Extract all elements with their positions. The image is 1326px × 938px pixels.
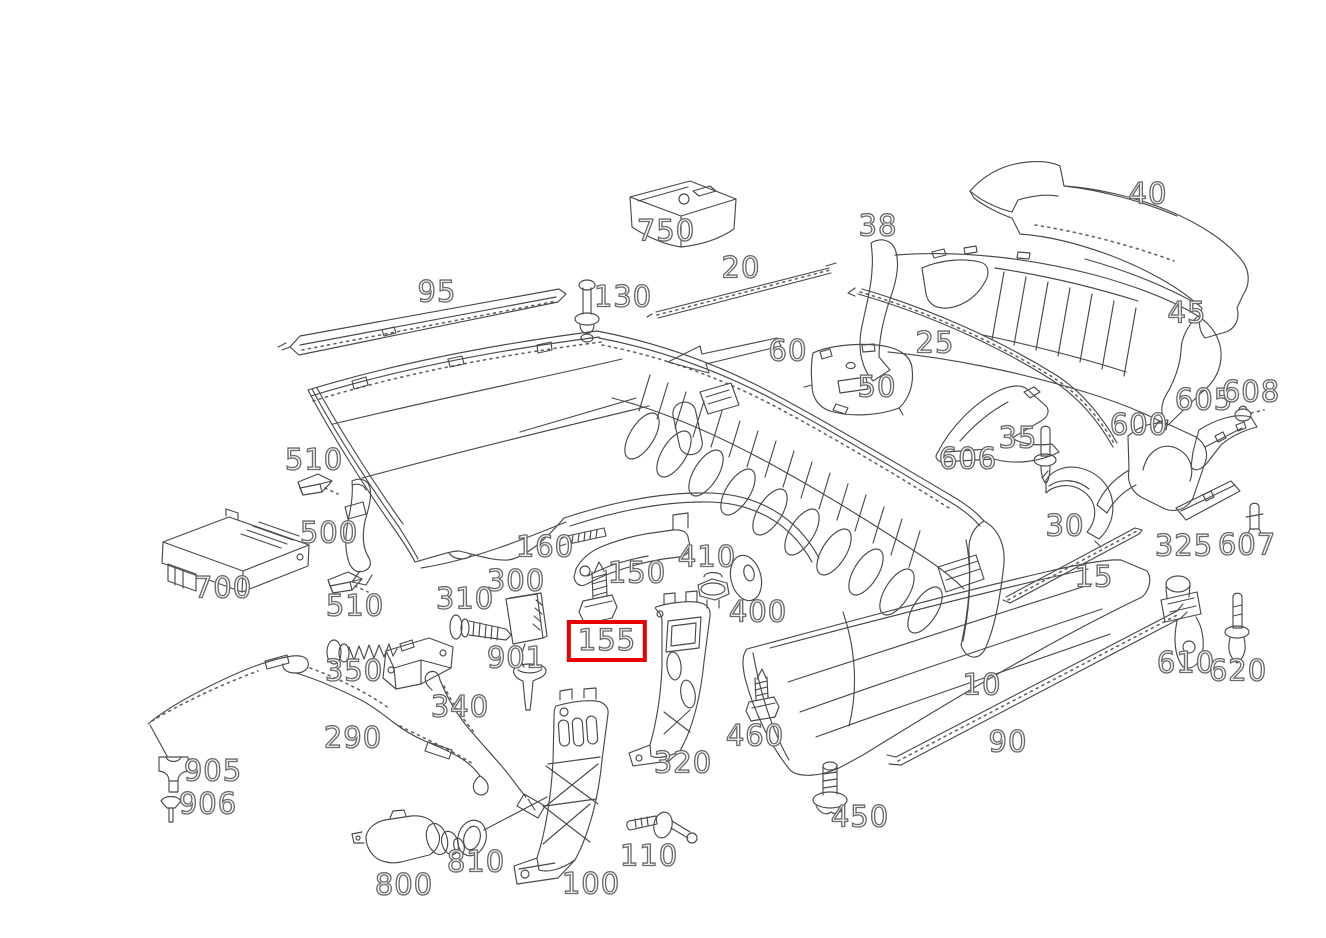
part-label-50[interactable]: 50	[858, 373, 897, 402]
part-label-510-lower[interactable]: 510	[326, 592, 384, 621]
part-label-460[interactable]: 460	[726, 722, 784, 751]
part-label-350[interactable]: 350	[325, 657, 383, 686]
part-label-450[interactable]: 450	[831, 803, 889, 832]
part-label-25[interactable]: 25	[916, 329, 955, 358]
part-label-608[interactable]: 608	[1222, 378, 1280, 407]
part-label-607[interactable]: 607	[1218, 531, 1276, 560]
part-label-150[interactable]: 150	[608, 559, 666, 588]
part-label-606[interactable]: 606	[939, 445, 997, 474]
part-label-905[interactable]: 905	[184, 757, 242, 786]
part-label-340[interactable]: 340	[431, 693, 489, 722]
part-label-160[interactable]: 160	[516, 533, 574, 562]
part-label-95[interactable]: 95	[418, 278, 457, 307]
part-label-60[interactable]: 60	[769, 337, 808, 366]
part-label-325[interactable]: 325	[1155, 532, 1213, 561]
part-label-38[interactable]: 38	[859, 212, 898, 241]
part-label-310[interactable]: 310	[436, 585, 494, 614]
part-label-510-upper[interactable]: 510	[285, 446, 343, 475]
part-label-15[interactable]: 15	[1075, 563, 1114, 592]
part-label-110[interactable]: 110	[620, 842, 678, 871]
part-label-700[interactable]: 700	[194, 574, 252, 603]
part-label-130[interactable]: 130	[594, 283, 652, 312]
part-label-90[interactable]: 90	[989, 728, 1028, 757]
part-label-620[interactable]: 620	[1209, 657, 1267, 686]
part-label-10[interactable]: 10	[963, 671, 1002, 700]
part-label-750[interactable]: 750	[637, 217, 695, 246]
part-label-320[interactable]: 320	[654, 749, 712, 778]
part-label-400[interactable]: 400	[729, 598, 787, 627]
part-label-290[interactable]: 290	[324, 724, 382, 753]
part-label-500[interactable]: 500	[300, 519, 358, 548]
part-label-906[interactable]: 906	[179, 790, 237, 819]
parts-diagram: 4038452520750951306050606353060060560832…	[0, 0, 1326, 938]
part-label-40[interactable]: 40	[1129, 180, 1168, 209]
part-label-100[interactable]: 100	[562, 870, 620, 899]
part-label-30[interactable]: 30	[1046, 512, 1085, 541]
part-label-800[interactable]: 800	[375, 871, 433, 900]
part-label-45[interactable]: 45	[1168, 299, 1207, 328]
part-label-600[interactable]: 600	[1110, 411, 1168, 440]
part-label-901[interactable]: 901	[487, 644, 545, 673]
part-label-155[interactable]: 155	[567, 620, 647, 662]
part-label-20[interactable]: 20	[722, 254, 761, 283]
part-label-35[interactable]: 35	[999, 424, 1038, 453]
part-label-300[interactable]: 300	[487, 567, 545, 596]
part-label-610[interactable]: 610	[1157, 649, 1215, 678]
part-label-410[interactable]: 410	[678, 543, 736, 572]
part-label-810[interactable]: 810	[447, 848, 505, 877]
labels-layer: 4038452520750951306050606353060060560832…	[0, 0, 1326, 938]
